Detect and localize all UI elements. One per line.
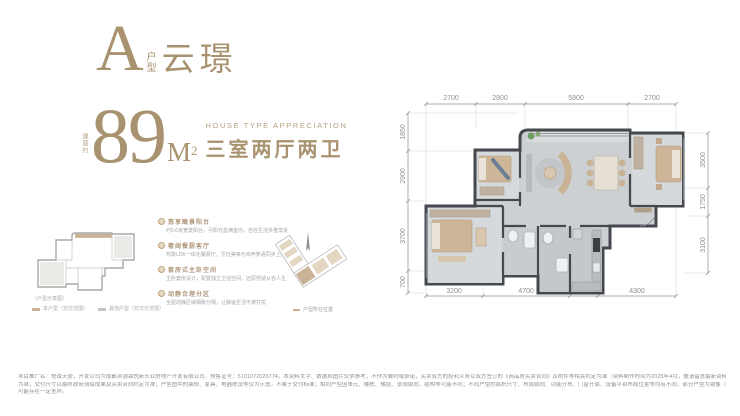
area-value: 89 (91, 104, 165, 168)
dim-left-4: 700 (400, 276, 407, 288)
legend-item-this-unit: 本户型（交付范围） (32, 305, 88, 313)
disclaimer-line-2: 为准，交付尺寸以最终政府测绘成果及买卖合同约定为准；户型图中的装修、家具、电器陈… (18, 382, 726, 390)
keyplan-diagram (28, 218, 150, 292)
house-type-label: 户 型 (147, 52, 158, 74)
keyplan-legend: （户型示意图） 本户型（交付范围） 其他户型（非交付范围） (32, 295, 164, 313)
dim-bottom-1: 3200 (446, 288, 462, 295)
legend-swatch-tan (32, 308, 40, 311)
keyplan-room-fill (114, 236, 132, 258)
legend-item-other-unit: 其他户型（非交付范围） (98, 305, 164, 313)
north-arrow-icon (301, 231, 315, 257)
dim-left-2: 2900 (400, 168, 407, 184)
keyplan-room-fill2 (40, 262, 64, 285)
area-caption-cn: 三室两厅两卫 (206, 133, 348, 162)
area-block: 建面约 89 M2 HOUSE TYPE APPRECIATION 三室两厅两卫 (80, 104, 347, 168)
dim-top-2: 2800 (492, 95, 508, 102)
disclaimer-line-1: 项目推广名：悦璞天骄，开发公司为成都滨潮锦悦新乐业房地产开发有限公司，预售证号：… (18, 374, 726, 382)
house-type-letter: A (96, 18, 144, 80)
plate-caption-swatch (293, 309, 300, 311)
feature-bullet-icon (158, 218, 165, 225)
dim-right-3: 3100 (700, 237, 707, 253)
dim-left-1: 1850 (400, 124, 407, 140)
plate-caption: 户型所在位置 (293, 306, 333, 313)
dim-top-1: 2700 (443, 95, 459, 102)
keyplan-balcony-highlight (75, 234, 112, 238)
floorplan: 2700 2800 5800 2700 3200 4700 1800 4300 … (398, 88, 732, 322)
dim-left-3: 3700 (400, 228, 407, 244)
dim-top-3: 5800 (568, 95, 584, 102)
dim-top-4: 2700 (644, 95, 660, 102)
feature-bullet-icon (158, 266, 165, 273)
area-unit: M2 (167, 139, 198, 164)
house-type-title: A 户 型 云璟 (96, 18, 238, 80)
area-caption: HOUSE TYPE APPRECIATION 三室两厅两卫 (206, 121, 348, 162)
disclaimer-line-3: 可能存在一定差异。 (18, 389, 726, 397)
dim-bottom-2: 4700 (518, 288, 534, 295)
feature-bullet-icon (158, 242, 165, 249)
area-caption-en: HOUSE TYPE APPRECIATION (206, 121, 348, 130)
poster: A 户 型 云璟 建面约 89 M2 HOUSE TYPE APPRECIATI… (0, 0, 740, 416)
dim-right-1: 3500 (700, 152, 707, 168)
dim-bottom-4: 4300 (629, 288, 645, 295)
area-prefix: 建面约 (80, 133, 89, 154)
legend-swatch-gray (98, 308, 106, 311)
keyplan-legend-title: （户型示意图） (32, 295, 164, 303)
dim-right-2: 1750 (700, 194, 707, 210)
disclaimer-text: 项目推广名：悦璞天骄，开发公司为成都滨潮锦悦新乐业房地产开发有限公司，预售证号：… (18, 374, 726, 397)
house-type-name: 云璟 (162, 42, 238, 78)
feature-bullet-icon (158, 290, 165, 297)
